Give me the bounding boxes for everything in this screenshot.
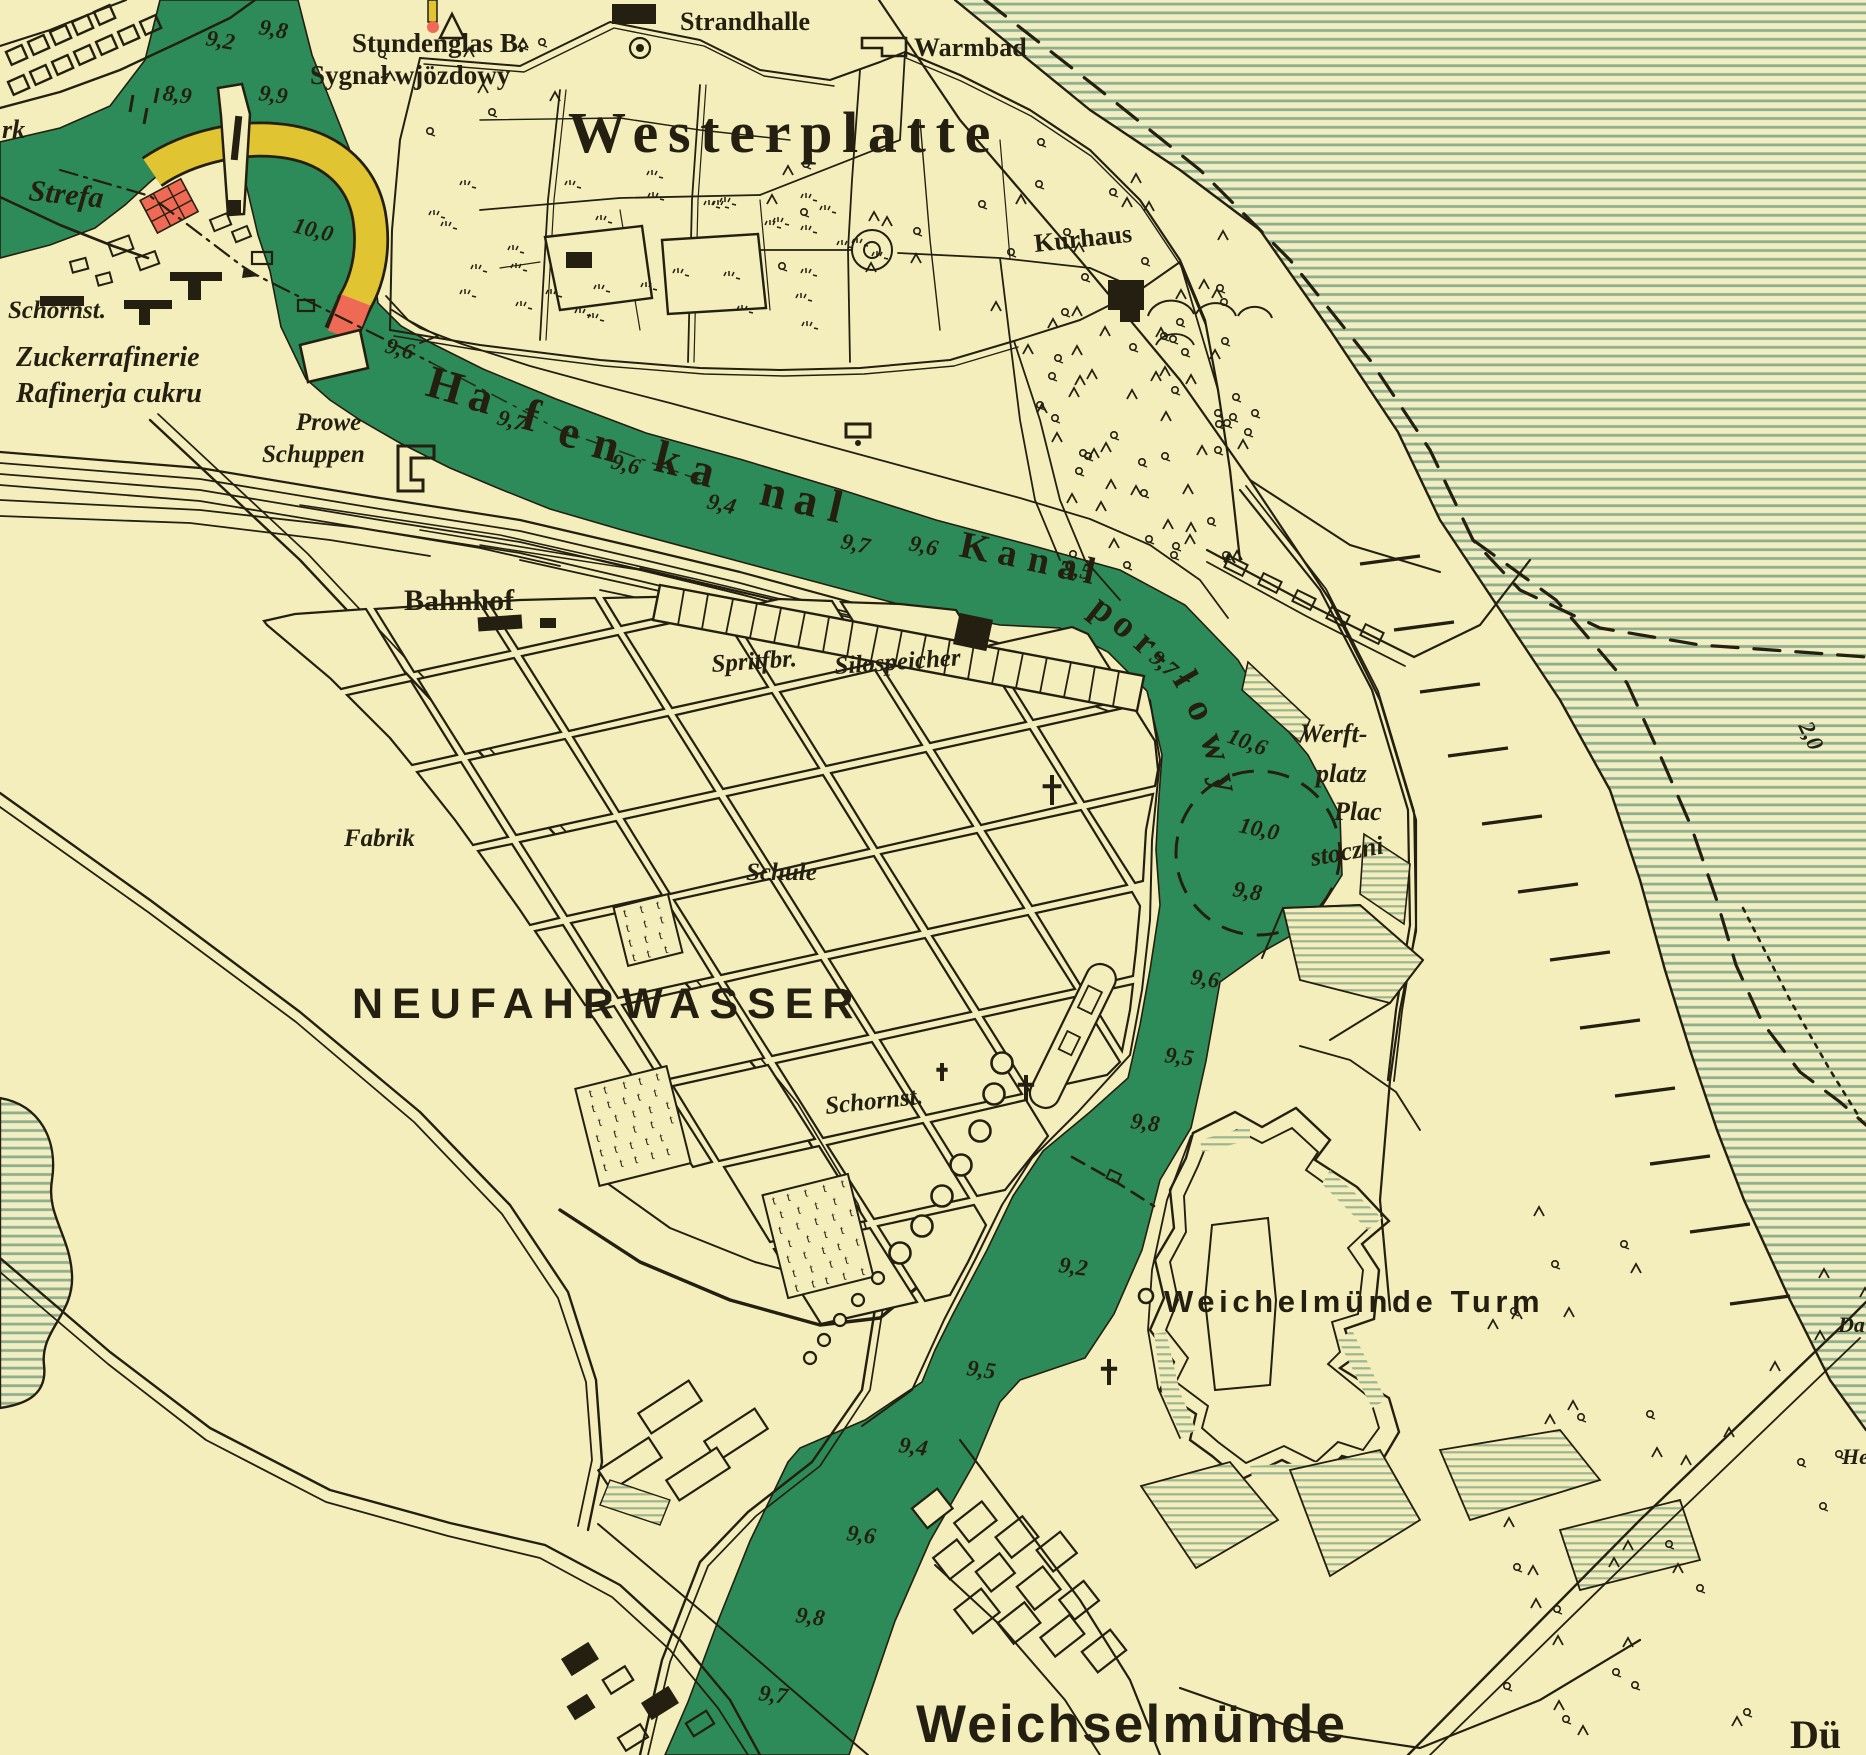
svg-text:rk: rk — [2, 115, 25, 144]
svg-text:9,5: 9,5 — [1163, 1042, 1195, 1071]
svg-text:9,8: 9,8 — [794, 1602, 826, 1631]
svg-text:Weichselmünde: Weichselmünde — [916, 1695, 1347, 1754]
svg-text:9,8: 9,8 — [1231, 876, 1264, 906]
svg-text:9,6: 9,6 — [845, 1520, 877, 1549]
svg-text:Fabrik: Fabrik — [343, 825, 415, 852]
svg-text:Westerplatte: Westerplatte — [568, 100, 1000, 165]
svg-text:Da: Da — [1837, 1312, 1865, 1337]
svg-text:9,6: 9,6 — [1189, 964, 1221, 993]
svg-text:9,7: 9,7 — [757, 1680, 790, 1709]
svg-text:Plac: Plac — [1333, 797, 1382, 826]
svg-text:9,4: 9,4 — [897, 1432, 929, 1461]
svg-text:Prowe: Prowe — [295, 409, 361, 436]
svg-text:Schule: Schule — [746, 859, 817, 886]
svg-text:He: He — [1841, 1444, 1866, 1469]
svg-text:platz: platz — [1314, 759, 1367, 788]
svg-text:Warmbad: Warmbad — [914, 33, 1027, 62]
svg-text:9,2: 9,2 — [1057, 1252, 1089, 1281]
svg-text:NEUFAHRWASSER: NEUFAHRWASSER — [352, 980, 862, 1028]
svg-text:Werft-: Werft- — [1300, 719, 1367, 748]
svg-text:Schornst.: Schornst. — [8, 297, 106, 324]
svg-text:Sygnał wjözdowy: Sygnał wjözdowy — [310, 60, 511, 90]
svg-text:Strandhalle: Strandhalle — [680, 7, 810, 36]
svg-text:9,9: 9,9 — [257, 80, 289, 109]
svg-text:Bahnhof: Bahnhof — [404, 584, 515, 617]
svg-text:8,9: 8,9 — [161, 80, 193, 109]
svg-text:Zuckerrafinerie: Zuckerrafinerie — [15, 342, 200, 373]
svg-text:9,8: 9,8 — [257, 14, 290, 44]
svg-text:Dü: Dü — [1790, 1712, 1841, 1755]
svg-text:9,8: 9,8 — [1129, 1108, 1161, 1137]
svg-text:Rafinerja cukru: Rafinerja cukru — [15, 378, 202, 409]
svg-text:9,5: 9,5 — [965, 1355, 997, 1384]
svg-text:9,2: 9,2 — [204, 25, 237, 55]
svg-text:Stundenglas B.: Stundenglas B. — [352, 28, 525, 58]
svg-text:Schuppen: Schuppen — [262, 441, 365, 468]
svg-text:Weichelmünde Turm: Weichelmünde Turm — [1164, 1284, 1544, 1319]
